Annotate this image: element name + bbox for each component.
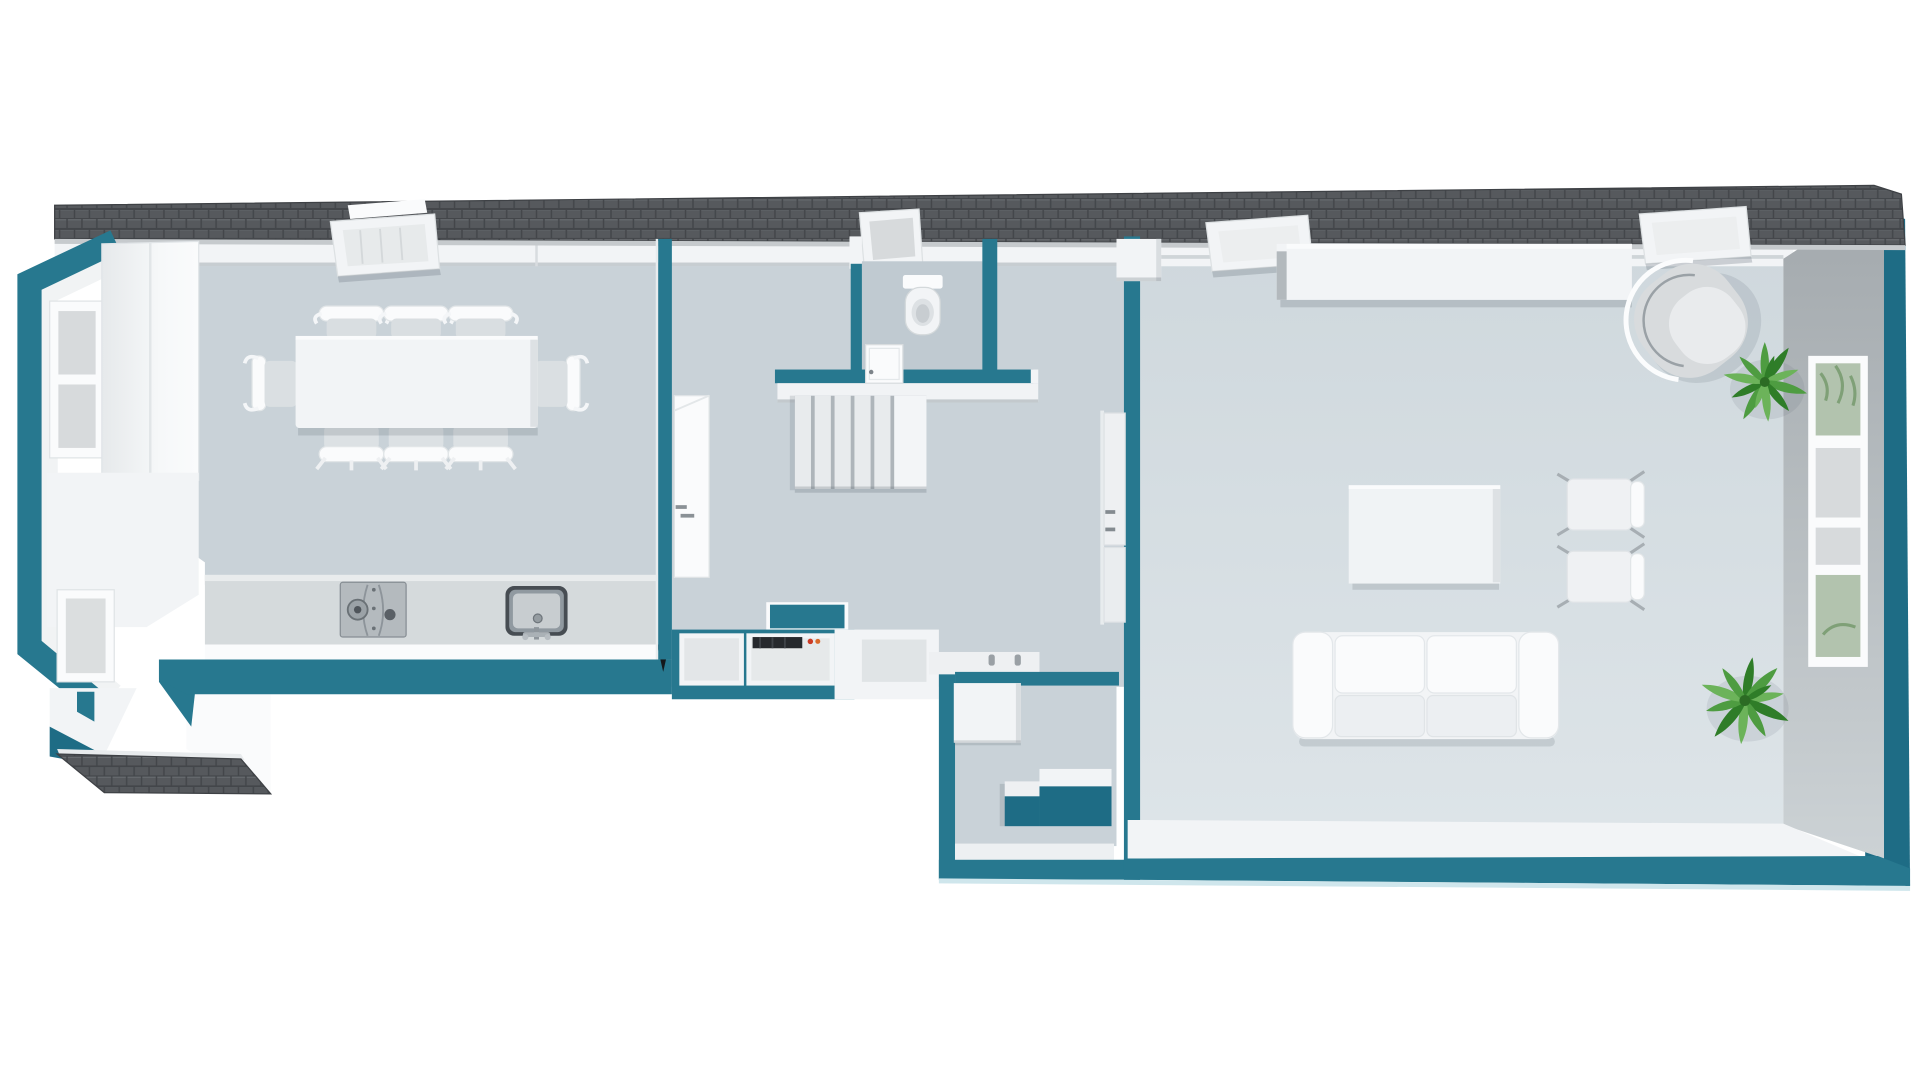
dining-chair (245, 356, 297, 411)
right-window-pane-2 (1816, 448, 1861, 518)
sofa-seat-cushion (1335, 696, 1424, 737)
door-handle (869, 370, 873, 374)
door-handle (681, 514, 695, 518)
right-window-pane-4 (1816, 575, 1861, 657)
right-window-rail (1816, 518, 1861, 528)
window-pane (58, 384, 95, 447)
dining-table (296, 336, 538, 436)
peninsula-top (770, 605, 845, 629)
divider-wall-highlight (656, 239, 658, 660)
counter-front-face (205, 645, 665, 661)
chair-back (566, 356, 580, 411)
side-chair (1557, 544, 1644, 610)
chair-seat (456, 319, 506, 339)
step-top (1039, 786, 1111, 826)
closet-shadow (954, 740, 1021, 745)
chair-seat (1567, 479, 1632, 530)
right-window-rail (1816, 438, 1861, 448)
step-riser (1039, 769, 1111, 789)
stair-upper-landing (894, 396, 926, 489)
bathroom-left-wall (851, 264, 862, 373)
wall-stub-inset (862, 640, 927, 682)
coffee-table (1349, 485, 1501, 590)
burner-center (354, 606, 361, 613)
entry-bottom-inner-face (955, 844, 1114, 860)
stair-side-shadow (790, 396, 795, 491)
landing-wall-cap (1031, 370, 1038, 384)
coffee-table-shadow (1352, 584, 1499, 590)
closet-body (954, 683, 1021, 743)
sofa-back-cushion (1427, 636, 1516, 693)
sideboard-shadow (1280, 300, 1631, 307)
bathroom-right-wall (982, 239, 997, 371)
living-room-left-wall (1124, 236, 1140, 881)
bottom-wall-inner-face (1128, 820, 1866, 859)
chair-back (384, 447, 449, 462)
dining-chair (535, 356, 587, 411)
toilet (903, 275, 943, 335)
sofa-armrest-right (1519, 632, 1559, 738)
sink (505, 586, 567, 640)
knob (372, 626, 376, 630)
toilet-tank (903, 275, 943, 289)
sofa-armrest-left (1293, 632, 1333, 738)
coffee-table-edge (1493, 486, 1500, 582)
entry-closet (954, 683, 1021, 745)
door-leaf (1104, 547, 1125, 622)
skylight-pane (343, 224, 429, 266)
red-knob (808, 639, 813, 644)
chair-back (252, 356, 266, 411)
floor-plan-canvas (0, 0, 1920, 1080)
living-room-door (1100, 411, 1125, 625)
chimney-body (1116, 239, 1161, 281)
kitchen-hall-divider-wall (658, 239, 672, 660)
coffee-table-highlight (1349, 485, 1501, 489)
sideboard-highlight (1287, 244, 1632, 249)
sideboard-body (1277, 244, 1632, 300)
chair-back (448, 447, 513, 462)
entry-left-wall (939, 674, 955, 878)
chair-seat (1567, 551, 1632, 602)
right-window-pane-3 (1816, 528, 1861, 565)
knob (372, 607, 376, 611)
bathroom-window-pane (869, 218, 915, 260)
plant-center (1739, 695, 1750, 706)
faucet-handle (522, 634, 528, 640)
kitchen-door (674, 396, 709, 578)
closet-edge (1016, 683, 1021, 743)
sideboard-end-cap (1277, 251, 1287, 300)
chair-seat (265, 361, 297, 407)
window-pane (66, 598, 106, 673)
table-shadow (298, 428, 538, 435)
door-handle (1105, 510, 1115, 514)
stair-tread (835, 396, 851, 489)
plant-center (1760, 377, 1770, 387)
bathroom-roof-window (859, 209, 922, 269)
faucet-handle (545, 634, 551, 640)
burner-small (384, 609, 395, 620)
sofa (1293, 632, 1559, 746)
right-window-rail (1816, 565, 1861, 575)
sofa-seat-cushion (1427, 696, 1516, 737)
stair-tread (874, 396, 890, 489)
table-top (296, 336, 538, 428)
tap-fixture (1015, 654, 1021, 665)
window-pane (58, 311, 95, 374)
door-handle (676, 505, 687, 509)
kitchen-counter (205, 575, 665, 661)
alcove-left-interior (684, 638, 739, 680)
left-bay (32, 241, 198, 711)
step-riser (1005, 781, 1040, 798)
orange-knob (815, 639, 820, 644)
counter-surface (205, 575, 665, 645)
chair-seat (535, 361, 567, 407)
sink-drain (533, 614, 542, 623)
entry-bottom-wall (939, 860, 1133, 880)
chair-seat (391, 319, 441, 339)
side-chair (1557, 472, 1644, 538)
stair-tread (795, 396, 811, 489)
tap-fixture (989, 654, 995, 665)
skylight-pane (1652, 216, 1740, 255)
bay-window-upper (50, 301, 105, 458)
chimney-shadow (1116, 277, 1161, 281)
toilet-bowl-inner (916, 304, 930, 323)
counter-back-edge (205, 575, 665, 581)
bathroom-door (866, 345, 903, 384)
door-handle (1105, 528, 1115, 532)
coffee-table-top (1349, 485, 1501, 583)
chimney-block (1116, 239, 1161, 281)
landing-wall (775, 370, 1033, 384)
door-leaf (866, 345, 903, 384)
window-sash (55, 375, 101, 384)
chair-back (319, 447, 384, 462)
bay-window-lower (57, 590, 114, 682)
door-leaf (674, 396, 709, 578)
floor-plan-screenshot (0, 0, 1920, 1080)
table-edge (530, 337, 537, 427)
chair-seat (327, 319, 377, 339)
chimney-edge (1156, 239, 1161, 281)
table-highlight (296, 336, 538, 340)
sideboard (1277, 244, 1632, 307)
step-shadow (1000, 784, 1005, 826)
porch-roof (57, 754, 271, 794)
step-top (1005, 796, 1040, 826)
kitchen-bottom-wall (159, 659, 672, 694)
stair-tread (854, 396, 870, 489)
stair-tread (815, 396, 831, 489)
knob (372, 588, 376, 592)
right-window (1808, 356, 1868, 667)
sofa-back-cushion (1335, 636, 1424, 693)
bench-top (929, 652, 1040, 674)
chair-back (1631, 482, 1645, 528)
door-leaf (1104, 413, 1125, 545)
chair-back (1631, 554, 1645, 600)
hall-bench (929, 652, 1040, 674)
cooktop (340, 582, 406, 637)
roof (55, 185, 1905, 250)
living-skylight-right (1639, 207, 1752, 270)
stair-shadow (795, 486, 927, 492)
